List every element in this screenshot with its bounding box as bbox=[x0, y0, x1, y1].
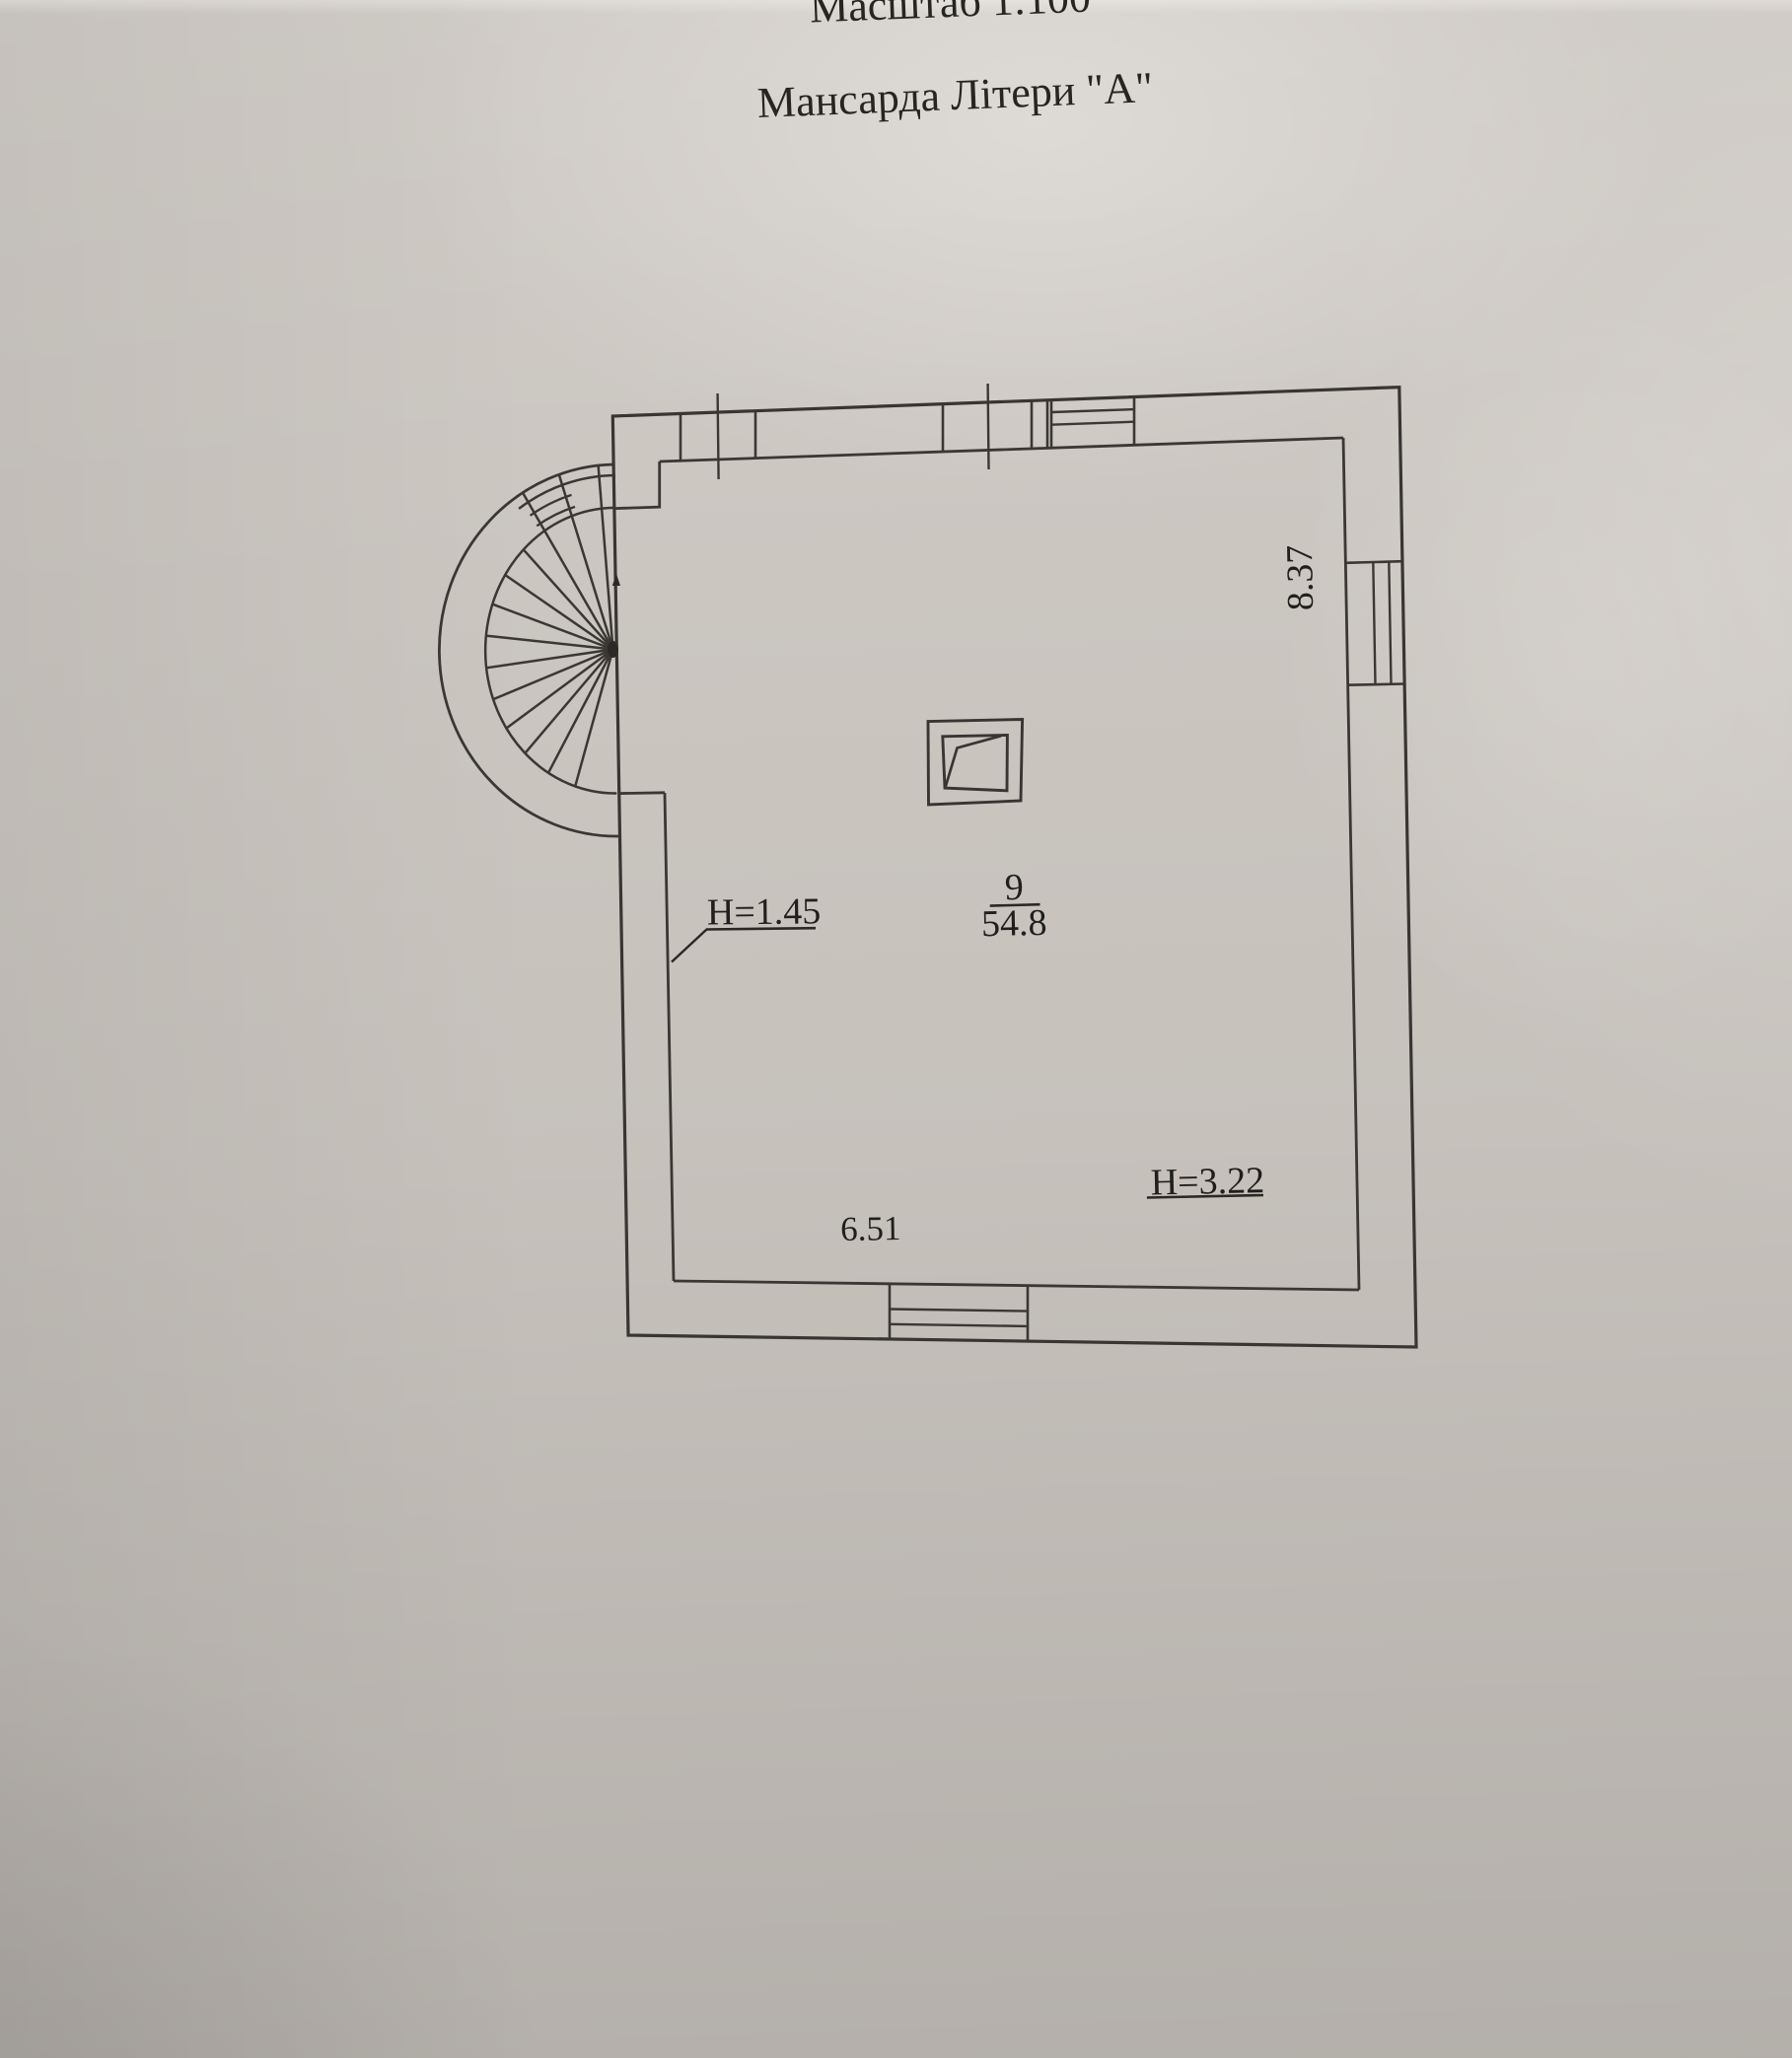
svg-text:6.51: 6.51 bbox=[840, 1209, 901, 1248]
svg-text:Масштаб 1:100: Масштаб 1:100 bbox=[809, 0, 1092, 32]
svg-text:Мансарда Літери "А": Мансарда Літери "А" bbox=[756, 63, 1154, 127]
svg-text:H=1.45: H=1.45 bbox=[707, 890, 822, 933]
svg-text:8.37: 8.37 bbox=[1279, 544, 1322, 610]
svg-text:54.8: 54.8 bbox=[981, 902, 1047, 945]
